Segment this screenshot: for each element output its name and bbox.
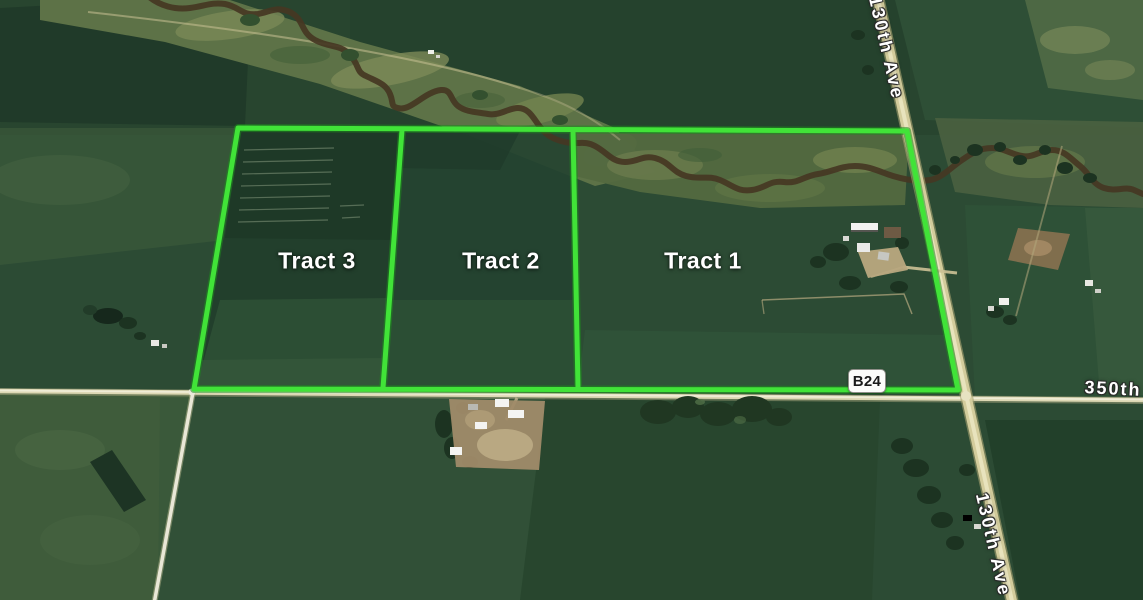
satellite-terrain — [0, 0, 1143, 600]
road-label-350th: 350th — [1084, 377, 1142, 401]
tract-2-label: Tract 2 — [462, 248, 540, 275]
aerial-map: Tract 3 Tract 2 Tract 1 130th Ave 350th … — [0, 0, 1143, 600]
tract-1-label: Tract 1 — [664, 248, 742, 275]
route-badge-b24: B24 — [848, 369, 886, 393]
tract-3-label: Tract 3 — [278, 248, 356, 275]
